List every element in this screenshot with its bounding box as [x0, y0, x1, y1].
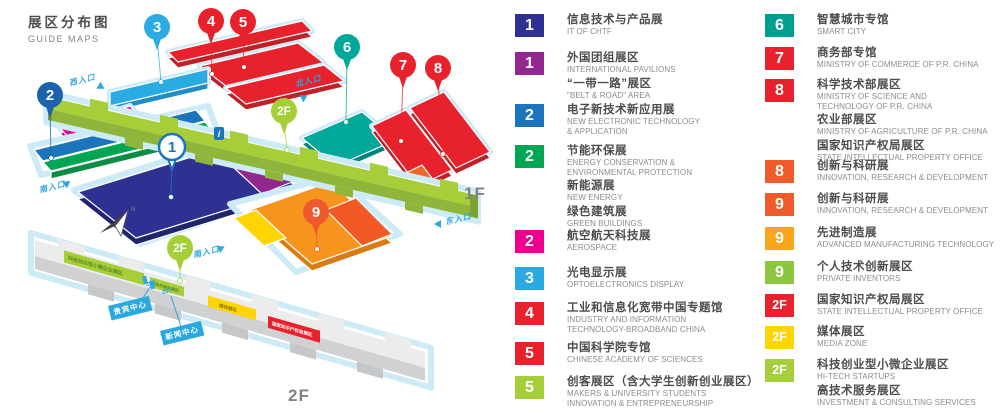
legend-number-badge: 3 — [515, 267, 544, 290]
legend-entry: 外国团组展区INTERNATIONAL PAVILIONS — [567, 52, 676, 75]
legend-label-zh: 信息技术与产品展 — [567, 14, 663, 27]
legend-texts: 创客展区（含大学生创新创业展区）MAKERS & UNIVERSITY STUD… — [567, 376, 759, 411]
legend-label-en: MINISTRY OF COMMERCE OF P.R. CHINA — [817, 60, 979, 70]
legend-row-right-6: 9先进制造展ADVANCED MANUFACTURING TECHNOLOGY — [765, 227, 994, 253]
pin-label: 2F — [277, 106, 290, 118]
legend-label-en: SMART CITY — [817, 27, 889, 37]
legend-number-badge: 6 — [765, 14, 794, 37]
pin-label: 6 — [343, 39, 351, 56]
legend-label-zh: 创新与科研展 — [817, 193, 988, 206]
legend-texts: 节能环保展ENERGY CONSERVATION & ENVIRONMENTAL… — [567, 145, 692, 231]
legend-entry: “一带一路”展区"BELT & ROAD" AREA — [567, 78, 676, 101]
legend-entry: 新能源展NEW ENERGY — [567, 180, 692, 203]
legend-label-zh: 电子新技术新应用展 — [567, 104, 700, 117]
legend-label-en: NEW ELECTRONIC TECHNOLOGY & APPLICATION — [567, 117, 700, 136]
legend-label-en: ENERGY CONSERVATION & ENVIRONMENTAL PROT… — [567, 158, 692, 177]
legend-row-left-3: 2电子新技术新应用展NEW ELECTRONIC TECHNOLOGY & AP… — [515, 104, 700, 139]
legend-entry: 智慧城市专馆SMART CITY — [817, 14, 889, 37]
legend-label-en: PRIVATE INVENTORS — [817, 274, 913, 284]
pin-target-dot — [169, 195, 174, 200]
pin-label: 3 — [153, 19, 161, 36]
legend-texts: 媒体展区MEDIA ZONE — [817, 326, 867, 352]
legend-texts: 先进制造展ADVANCED MANUFACTURING TECHNOLOGY — [817, 227, 994, 253]
legend-label-zh: 个人技术创新展区 — [817, 261, 913, 274]
legend-entry: 商务部专馆MINISTRY OF COMMERCE OF P.R. CHINA — [817, 47, 979, 70]
legend-entry: 工业和信息化宽带中国专题馆INDUSTRY AND INFORMATION TE… — [567, 302, 723, 334]
legend-number-badge: 2 — [515, 104, 544, 127]
legend-row-left-7: 4工业和信息化宽带中国专题馆INDUSTRY AND INFORMATION T… — [515, 302, 723, 337]
legend-row-right-8: 2F国家知识产权局展区STATE INTELLECTUAL PROPERTY O… — [765, 294, 983, 320]
floor-plan-svg: i N — [0, 0, 505, 417]
legend-label-en: INVESTMENT & CONSULTING SERVICES — [817, 398, 976, 408]
legend-texts: 光电显示展OPTOELECTRONICS DISPLAY — [567, 267, 684, 293]
legend-label-zh: “一带一路”展区 — [567, 78, 676, 91]
pin-target-dot — [242, 65, 247, 70]
pin-target-dot — [49, 156, 54, 161]
entrance-arrow-icon — [434, 220, 441, 228]
legend-label-en: ADVANCED MANUFACTURING TECHNOLOGY — [817, 240, 994, 250]
legend-label-zh: 节能环保展 — [567, 145, 692, 158]
legend-texts: 工业和信息化宽带中国专题馆INDUSTRY AND INFORMATION TE… — [567, 302, 723, 337]
legend-label-en: CHINESE ACADEMY OF SCIENCES — [567, 355, 703, 365]
legend-label-en: MINISTRY OF AGRICULTURE OF P.R. CHINA — [817, 127, 988, 137]
legend-label-zh: 国家知识产权局展区 — [817, 294, 983, 307]
legend-label-en: AEROSPACE — [567, 243, 651, 253]
legend-number-badge: 5 — [515, 376, 544, 399]
legend-texts: 航空航天科技展AEROSPACE — [567, 230, 651, 256]
floor-plan-map: i N — [0, 0, 505, 417]
legend-label-zh: 科技创业型小微企业展区 — [817, 359, 976, 372]
legend-number-badge: 9 — [765, 261, 794, 284]
legend-number-badge: 9 — [765, 193, 794, 216]
legend-label-zh: 高技术服务展区 — [817, 385, 976, 398]
legend-row-right-5: 9创新与科研展INNOVATION, RESEARCH & DEVELOPMEN… — [765, 193, 988, 219]
pin-target-dot — [399, 139, 404, 144]
legend-entry: 创新与科研展INNOVATION, RESEARCH & DEVELOPMENT — [817, 160, 988, 183]
legend-entry: 节能环保展ENERGY CONSERVATION & ENVIRONMENTAL… — [567, 145, 692, 177]
legend-number-badge: 2 — [515, 145, 544, 168]
legend-number-badge: 9 — [765, 227, 794, 250]
legend-label-zh: 商务部专馆 — [817, 47, 979, 60]
pin-label: 2 — [46, 87, 54, 104]
legend-label-zh: 光电显示展 — [567, 267, 684, 280]
legend-texts: 国家知识产权局展区STATE INTELLECTUAL PROPERTY OFF… — [817, 294, 983, 320]
legend-entry: 航空航天科技展AEROSPACE — [567, 230, 651, 253]
legend-row-right-1: 6智慧城市专馆SMART CITY — [765, 14, 889, 40]
hall-back-row — [110, 21, 344, 112]
legend-label-zh: 先进制造展 — [817, 227, 994, 240]
legend-entry: 创客展区（含大学生创新创业展区）MAKERS & UNIVERSITY STUD… — [567, 376, 759, 408]
legend-entry: 信息技术与产品展IT OF CHTF — [567, 14, 663, 37]
legend-label-zh: 航空航天科技展 — [567, 230, 651, 243]
legend-row-left-6: 3光电显示展OPTOELECTRONICS DISPLAY — [515, 267, 684, 293]
legend-texts: 科学技术部展区MINISTRY OF SCIENCE AND TECHNOLOG… — [817, 79, 988, 165]
floor-label-1f: 1F — [464, 184, 486, 204]
pin-label: 9 — [312, 204, 320, 221]
legend-label-en: INNOVATION, RESEARCH & DEVELOPMENT — [817, 206, 988, 216]
legend-entry: 绿色建筑展GREEN BUILDINGS — [567, 206, 692, 229]
legend-label-zh: 工业和信息化宽带中国专题馆 — [567, 302, 723, 315]
legend-entry: 先进制造展ADVANCED MANUFACTURING TECHNOLOGY — [817, 227, 994, 250]
legend-texts: 创新与科研展INNOVATION, RESEARCH & DEVELOPMENT — [817, 193, 988, 219]
legend-label-en: MAKERS & UNIVERSITY STUDENTS INNOVATION … — [567, 389, 759, 408]
legend-texts: 个人技术创新展区PRIVATE INVENTORS — [817, 261, 913, 287]
legend-row-right-2: 7商务部专馆MINISTRY OF COMMERCE OF P.R. CHINA — [765, 47, 979, 73]
legend-row-left-2: 1外国团组展区INTERNATIONAL PAVILIONS“一带一路”展区"B… — [515, 52, 676, 103]
legend-label-en: OPTOELECTRONICS DISPLAY — [567, 280, 684, 290]
pin-target-dot — [315, 247, 320, 252]
legend-row-right-7: 9个人技术创新展区PRIVATE INVENTORS — [765, 261, 913, 287]
legend-row-left-4: 2节能环保展ENERGY CONSERVATION & ENVIRONMENTA… — [515, 145, 692, 231]
floor-2f-strip[interactable]: 科技创业型小微企业展区 高技术服务展区 媒体展区 国家知识产权局展区 — [31, 231, 431, 393]
floor-label-2f: 2F — [288, 386, 310, 406]
legend-label-en: INTERNATIONAL PAVILIONS — [567, 65, 676, 75]
legend-entry: 媒体展区MEDIA ZONE — [817, 326, 867, 349]
legend-texts: 科技创业型小微企业展区HI-TECH STARTUPS高技术服务展区INVEST… — [817, 359, 976, 410]
legend-row-left-8: 5中国科学院专馆CHINESE ACADEMY OF SCIENCES — [515, 342, 703, 368]
legend-label-zh: 科学技术部展区 — [817, 79, 988, 92]
pin-target-dot — [285, 148, 290, 153]
pin-label: 8 — [434, 60, 442, 77]
legend-number-badge: 4 — [515, 302, 544, 325]
legend-entry: 国家知识产权局展区STATE INTELLECTUAL PROPERTY OFF… — [817, 294, 983, 317]
legend-label-zh: 创客展区（含大学生创新创业展区） — [567, 376, 759, 389]
legend-label-zh: 中国科学院专馆 — [567, 342, 703, 355]
legend-texts: 中国科学院专馆CHINESE ACADEMY OF SCIENCES — [567, 342, 703, 368]
pin-label: 4 — [207, 13, 216, 30]
legend-entry: 个人技术创新展区PRIVATE INVENTORS — [817, 261, 913, 284]
legend-row-left-9: 5创客展区（含大学生创新创业展区）MAKERS & UNIVERSITY STU… — [515, 376, 759, 411]
legend-label-en: NEW ENERGY — [567, 193, 692, 203]
legend-label-zh: 绿色建筑展 — [567, 206, 692, 219]
legend-label-zh: 媒体展区 — [817, 326, 867, 339]
legend-number-badge: 2F — [765, 294, 794, 317]
info-icon: i — [214, 127, 224, 140]
pin-target-dot — [210, 72, 215, 77]
legend-number-badge: 2F — [765, 359, 794, 382]
guide-map-page: 展区分布图 GUIDE MAPS — [0, 0, 1000, 417]
legend-entry: 高技术服务展区INVESTMENT & CONSULTING SERVICES — [817, 385, 976, 408]
legend-texts: 电子新技术新应用展NEW ELECTRONIC TECHNOLOGY & APP… — [567, 104, 700, 139]
legend-texts: 外国团组展区INTERNATIONAL PAVILIONS“一带一路”展区"BE… — [567, 52, 676, 103]
legend-entry: 电子新技术新应用展NEW ELECTRONIC TECHNOLOGY & APP… — [567, 104, 700, 136]
legend-entry: 科技创业型小微企业展区HI-TECH STARTUPS — [817, 359, 976, 382]
legend-label-zh: 国家知识产权局展区 — [817, 140, 988, 153]
legend-number-badge: 8 — [765, 79, 794, 102]
pin-label: 2F — [173, 243, 186, 255]
legend-number-badge: 1 — [515, 52, 544, 75]
pin-label: 5 — [239, 14, 247, 31]
svg-text:N: N — [131, 207, 135, 213]
legend-label-zh: 智慧城市专馆 — [817, 14, 889, 27]
legend-row-right-3: 8科学技术部展区MINISTRY OF SCIENCE AND TECHNOLO… — [765, 79, 988, 165]
legend-entry: 光电显示展OPTOELECTRONICS DISPLAY — [567, 267, 684, 290]
pin-target-dot — [159, 80, 164, 85]
legend-label-zh: 农业部展区 — [817, 114, 988, 127]
pin-label: 7 — [399, 57, 407, 74]
legend-label-en: STATE INTELLECTUAL PROPERTY OFFICE — [817, 307, 983, 317]
legend-number-badge: 2 — [515, 230, 544, 253]
legend-label-en: "BELT & ROAD" AREA — [567, 91, 676, 101]
legend-label-en: MEDIA ZONE — [817, 339, 867, 349]
legend-label-zh: 外国团组展区 — [567, 52, 676, 65]
legend-label-en: IT OF CHTF — [567, 27, 663, 37]
legend-row-right-4: 8创新与科研展INNOVATION, RESEARCH & DEVELOPMEN… — [765, 160, 988, 186]
legend-number-badge: 8 — [765, 160, 794, 183]
legend-label-en: INNOVATION, RESEARCH & DEVELOPMENT — [817, 173, 988, 183]
pin-target-dot — [441, 152, 446, 157]
legend-entry: 创新与科研展INNOVATION, RESEARCH & DEVELOPMENT — [817, 193, 988, 216]
legend-texts: 智慧城市专馆SMART CITY — [817, 14, 889, 40]
map-pin-3[interactable]: 3 — [144, 14, 170, 84]
legend-label-zh: 新能源展 — [567, 180, 692, 193]
legend-label-en: INDUSTRY AND INFORMATION TECHNOLOGY-BROA… — [567, 315, 723, 334]
legend-number-badge: 7 — [765, 47, 794, 70]
legend-entry: 国家知识产权局展区STATE INTELLECTUAL PROPERTY OFF… — [817, 140, 988, 163]
legend-label-en: MINISTRY OF SCIENCE AND TECHNOLOGY OF P.… — [817, 92, 988, 111]
legend-entry: 科学技术部展区MINISTRY OF SCIENCE AND TECHNOLOG… — [817, 79, 988, 111]
legend-label-zh: 创新与科研展 — [817, 160, 988, 173]
legend-number-badge: 1 — [515, 14, 544, 37]
legend-label-en: HI-TECH STARTUPS — [817, 372, 976, 382]
legend-label-en: GREEN BUILDINGS — [567, 219, 692, 229]
legend-texts: 商务部专馆MINISTRY OF COMMERCE OF P.R. CHINA — [817, 47, 979, 73]
legend-number-badge: 5 — [515, 342, 544, 365]
legend-row-right-10: 2F科技创业型小微企业展区HI-TECH STARTUPS高技术服务展区INVE… — [765, 359, 976, 410]
legend-number-badge: 2F — [765, 326, 794, 349]
legend-entry: 中国科学院专馆CHINESE ACADEMY OF SCIENCES — [567, 342, 703, 365]
legend-texts: 信息技术与产品展IT OF CHTF — [567, 14, 663, 40]
legend-row-right-9: 2F媒体展区MEDIA ZONE — [765, 326, 867, 352]
pin-target-dot — [178, 279, 183, 284]
legend-texts: 创新与科研展INNOVATION, RESEARCH & DEVELOPMENT — [817, 160, 988, 186]
pin-label: 1 — [168, 139, 176, 156]
pin-target-dot — [344, 120, 349, 125]
legend-row-left-5: 2航空航天科技展AEROSPACE — [515, 230, 651, 256]
legend-row-left-1: 1信息技术与产品展IT OF CHTF — [515, 14, 663, 40]
legend-entry: 农业部展区MINISTRY OF AGRICULTURE OF P.R. CHI… — [817, 114, 988, 137]
